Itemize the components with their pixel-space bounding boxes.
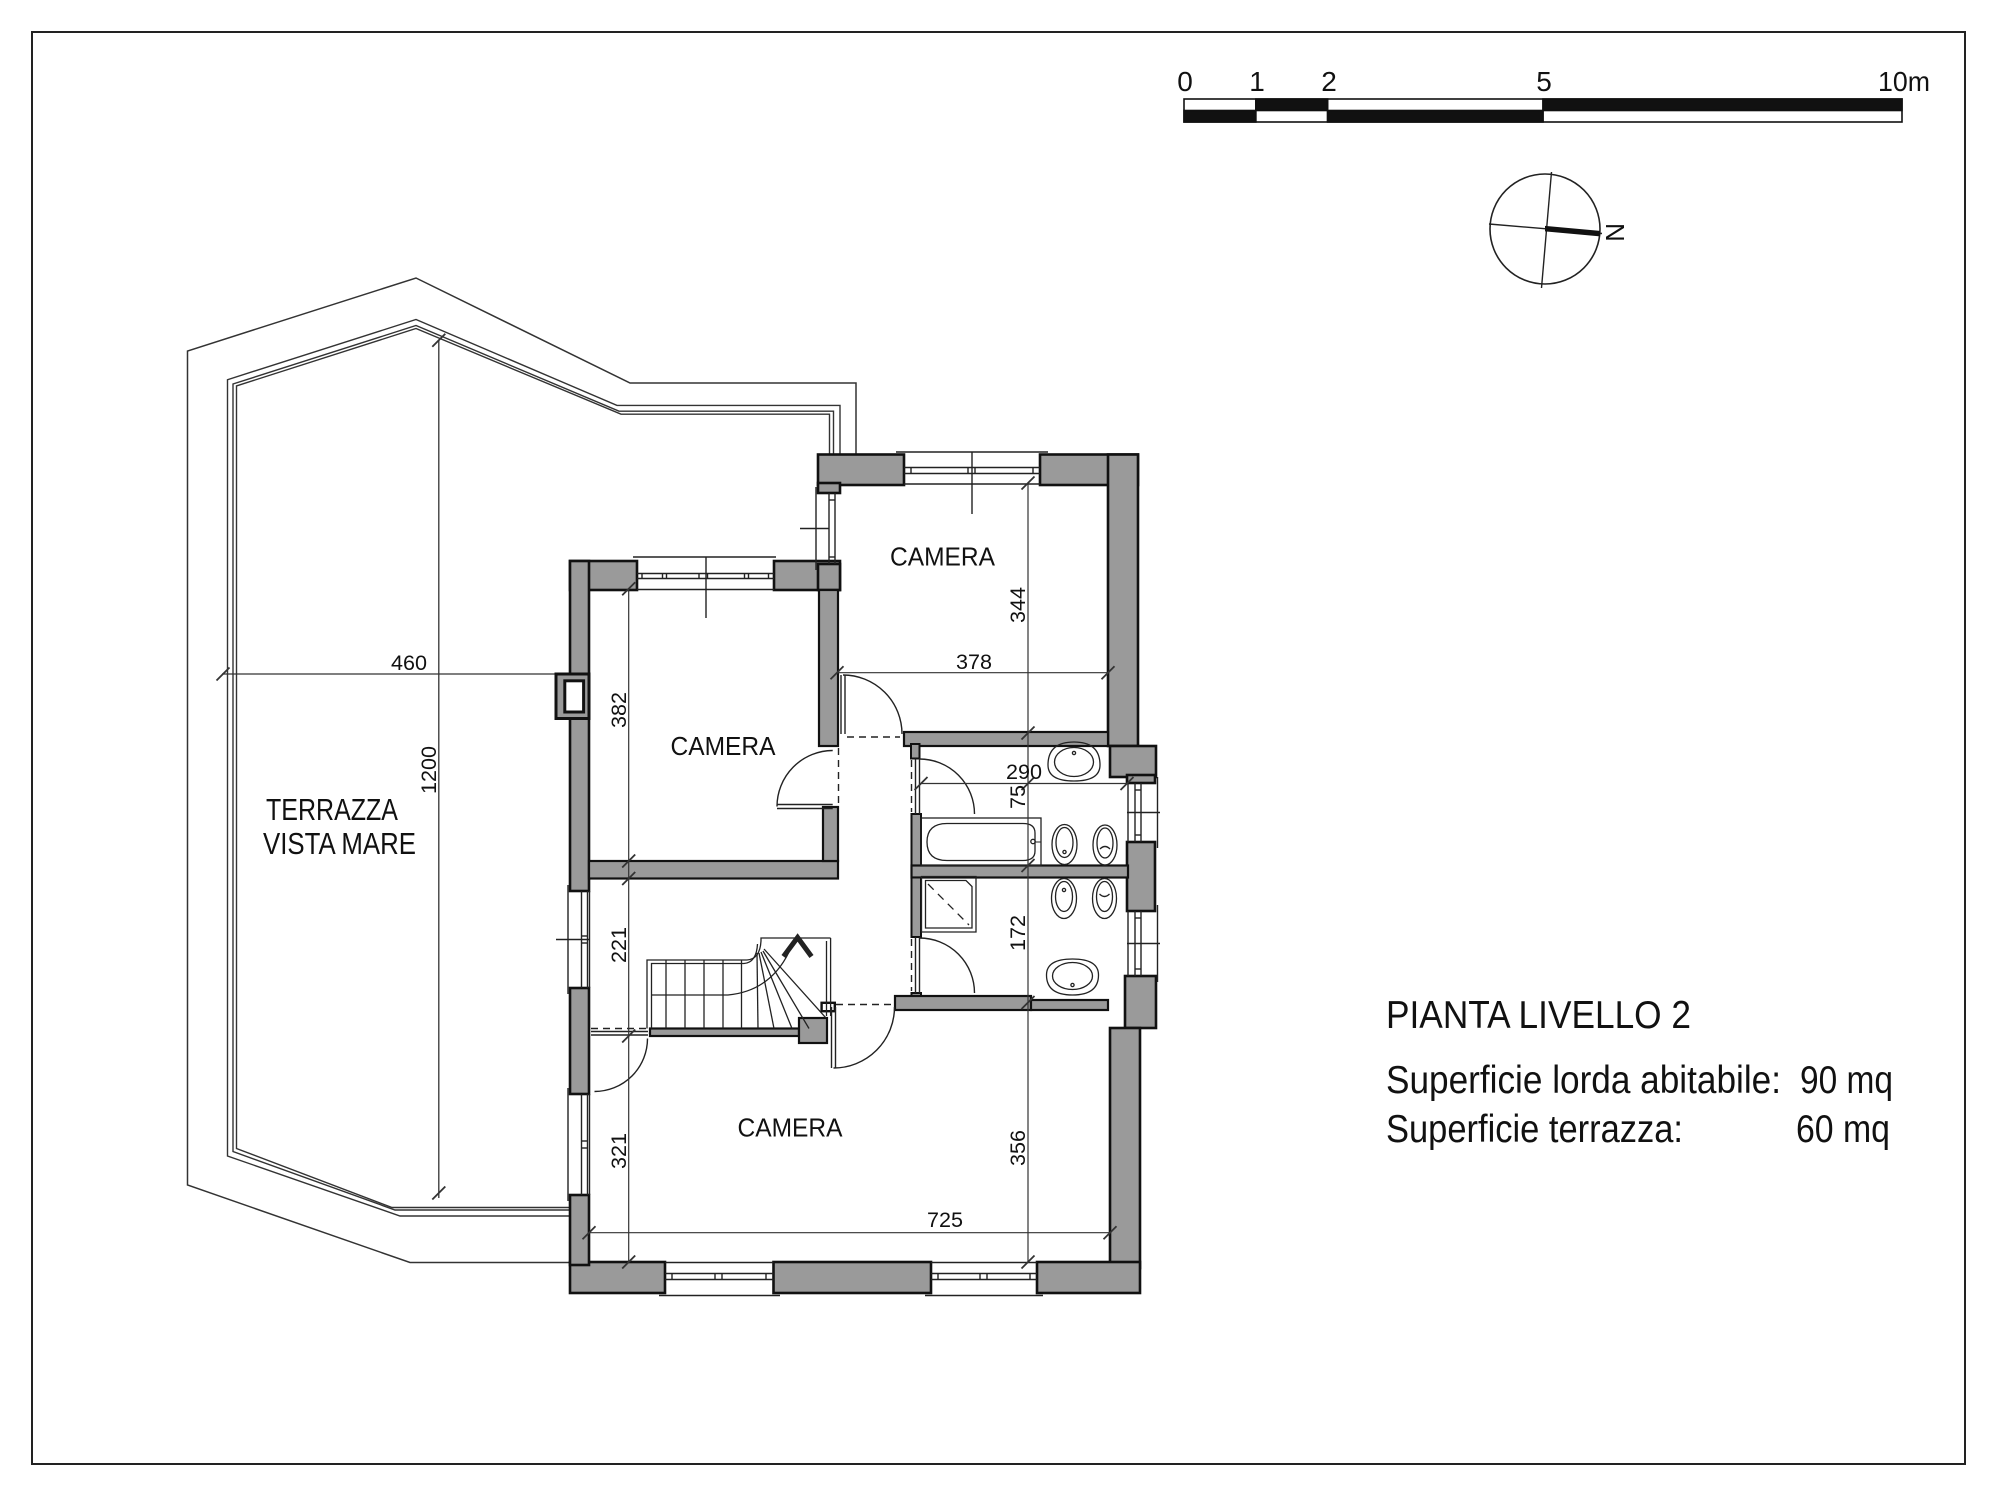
- svg-text:TERRAZZA: TERRAZZA: [266, 793, 399, 827]
- svg-text:1: 1: [1249, 66, 1265, 97]
- svg-text:725: 725: [927, 1209, 963, 1232]
- svg-text:CAMERA: CAMERA: [890, 542, 996, 572]
- svg-text:75: 75: [1007, 785, 1030, 809]
- svg-text:382: 382: [608, 692, 631, 728]
- svg-text:460: 460: [391, 652, 427, 675]
- svg-text:356: 356: [1007, 1130, 1030, 1166]
- svg-text:5: 5: [1536, 66, 1552, 97]
- svg-text:Superficie terrazza:: Superficie terrazza:: [1386, 1108, 1683, 1151]
- svg-text:2: 2: [1321, 66, 1337, 97]
- svg-text:CAMERA: CAMERA: [671, 731, 777, 761]
- svg-text:10m: 10m: [1878, 66, 1930, 97]
- svg-text:1200: 1200: [418, 746, 441, 794]
- svg-text:378: 378: [956, 651, 992, 674]
- svg-text:PIANTA LIVELLO 2: PIANTA LIVELLO 2: [1386, 994, 1691, 1037]
- svg-text:290: 290: [1006, 761, 1042, 784]
- svg-text:90 mq: 90 mq: [1800, 1059, 1893, 1102]
- svg-text:CAMERA: CAMERA: [738, 1113, 844, 1143]
- svg-text:221: 221: [608, 927, 631, 963]
- svg-text:60 mq: 60 mq: [1796, 1108, 1890, 1151]
- svg-text:N: N: [1600, 223, 1630, 242]
- svg-text:Superficie lorda abitabile:: Superficie lorda abitabile:: [1386, 1059, 1781, 1102]
- svg-text:VISTA MARE: VISTA MARE: [263, 827, 416, 861]
- svg-text:321: 321: [608, 1133, 631, 1169]
- svg-text:344: 344: [1007, 587, 1030, 623]
- svg-text:0: 0: [1177, 66, 1193, 97]
- svg-text:172: 172: [1007, 915, 1030, 951]
